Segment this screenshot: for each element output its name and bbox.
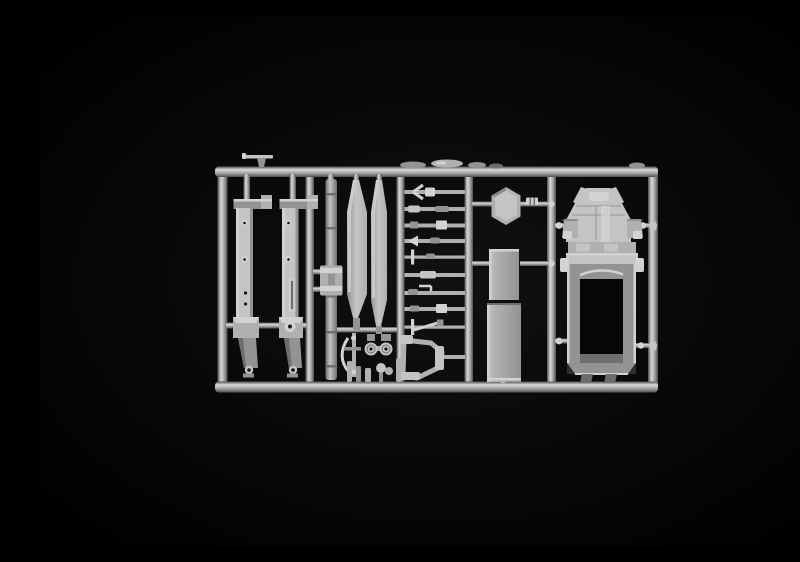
black-backdrop: [40, 16, 800, 546]
sprue-photograph: Light grey injection-moulded sprue (part…: [40, 16, 800, 546]
clip-part: Small ribbed clip: [526, 198, 538, 206]
bed-panel-lower-part: Cargo-bed panel (lower): [487, 303, 521, 382]
bed-panel-upper-part: Cargo-bed panel (upper): [489, 249, 519, 300]
ladder-rung: [444, 355, 465, 359]
